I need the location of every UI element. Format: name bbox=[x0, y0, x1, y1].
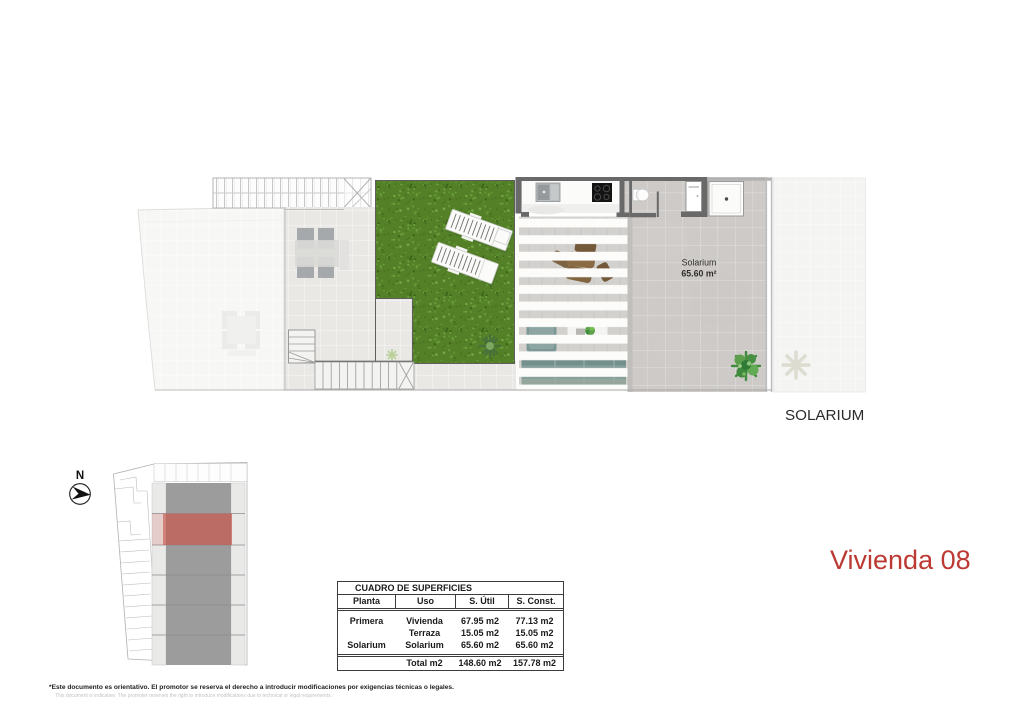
svg-text:N: N bbox=[76, 470, 84, 482]
svg-text:Solarium: Solarium bbox=[682, 258, 717, 268]
svg-text:65.60 m²: 65.60 m² bbox=[681, 269, 716, 279]
